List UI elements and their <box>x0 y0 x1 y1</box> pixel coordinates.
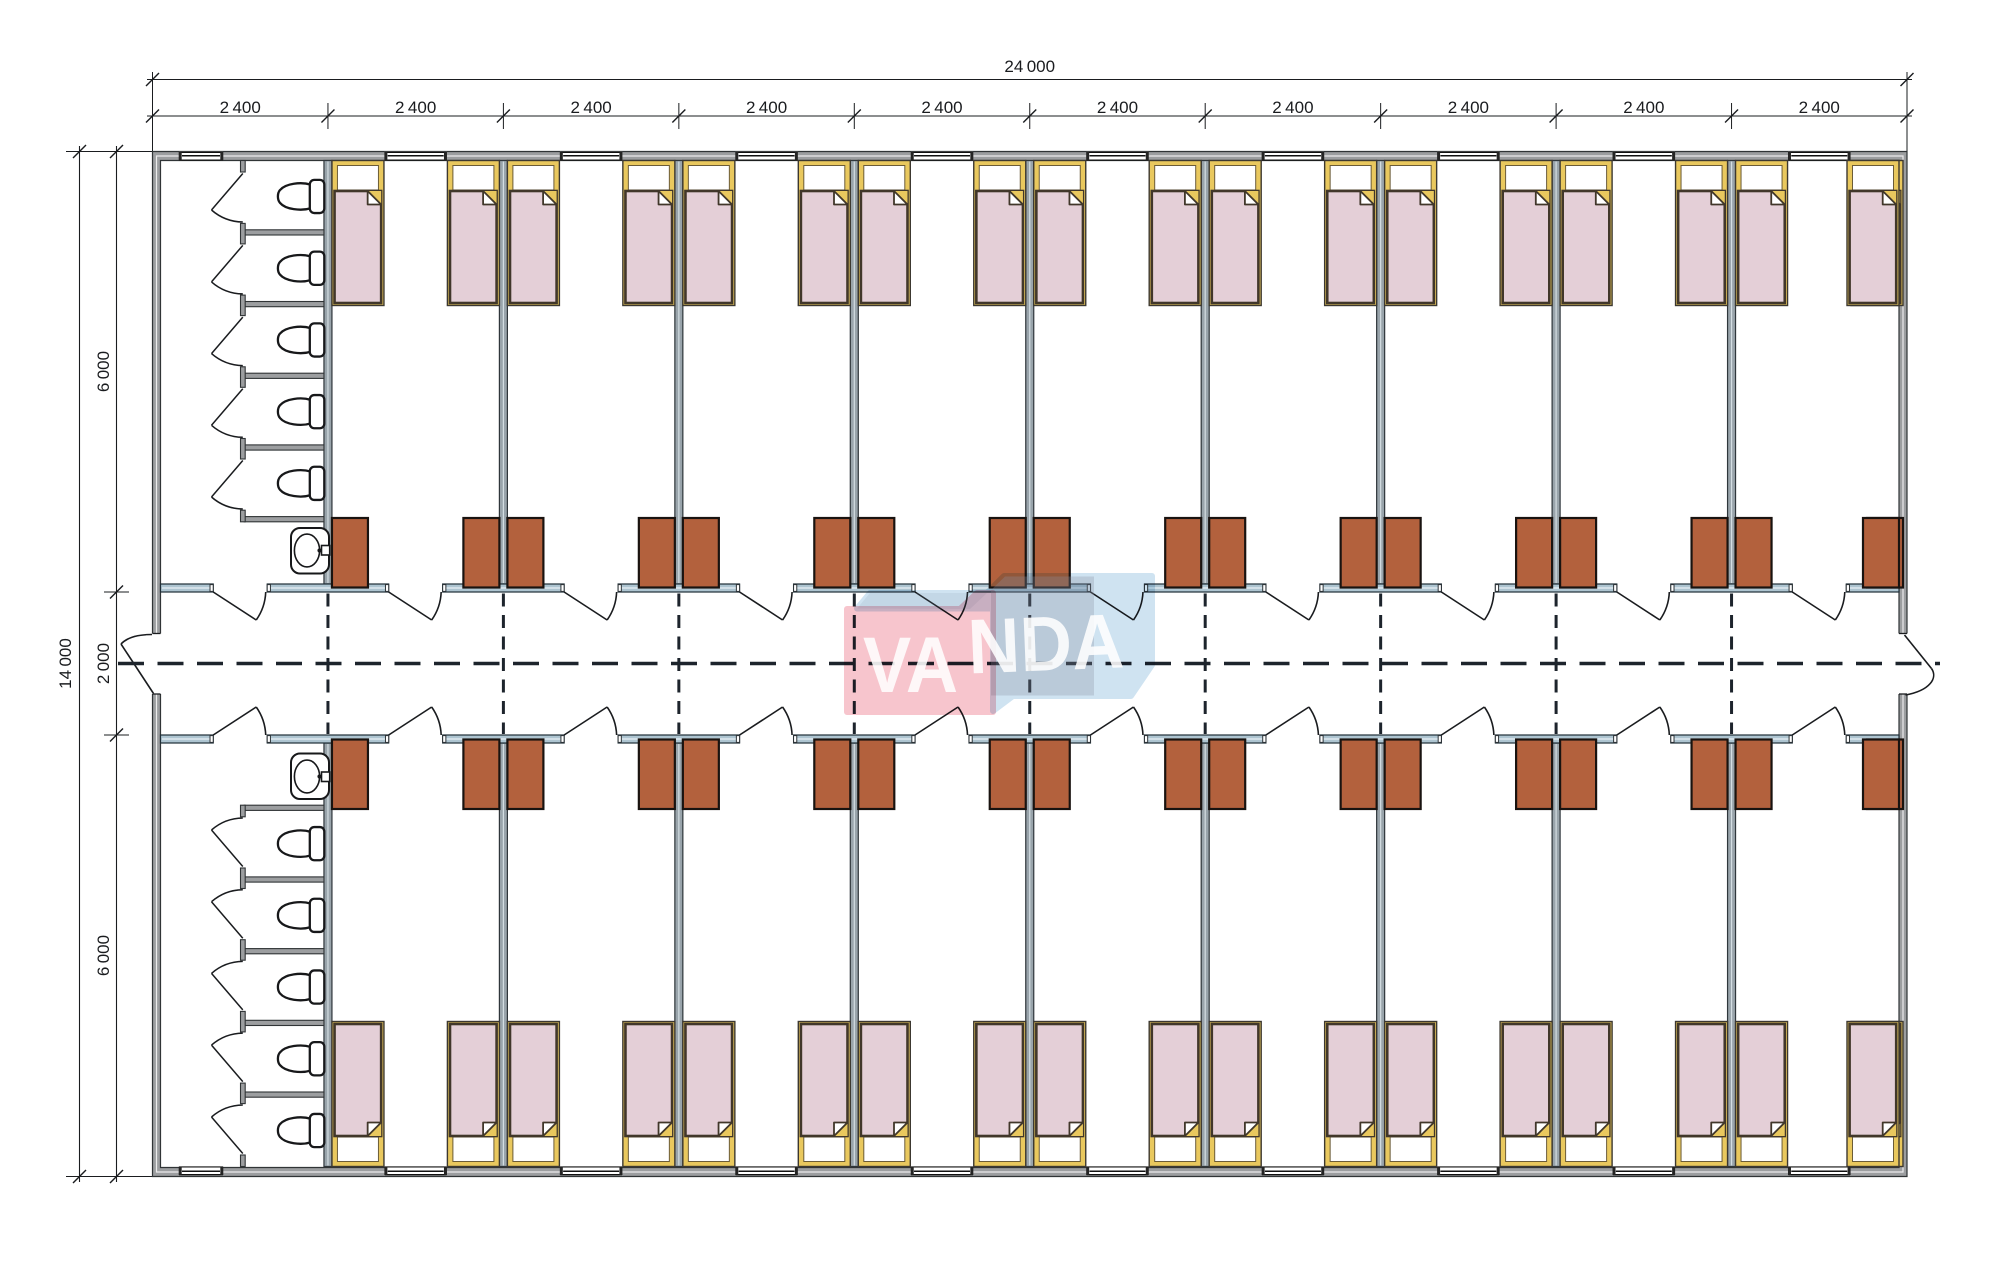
svg-text:2 400: 2 400 <box>746 98 787 117</box>
svg-text:2 400: 2 400 <box>571 98 612 117</box>
svg-text:6 000: 6 000 <box>94 351 113 392</box>
svg-text:14 000: 14 000 <box>56 638 75 689</box>
svg-text:2 400: 2 400 <box>1272 98 1313 117</box>
svg-text:NDA: NDA <box>966 598 1125 690</box>
svg-text:2 400: 2 400 <box>1623 98 1664 117</box>
svg-text:2 400: 2 400 <box>1097 98 1138 117</box>
svg-text:VA: VA <box>863 620 958 709</box>
svg-text:2 400: 2 400 <box>1448 98 1489 117</box>
svg-text:2 400: 2 400 <box>1799 98 1840 117</box>
svg-text:24 000: 24 000 <box>1004 57 1055 76</box>
svg-text:2 400: 2 400 <box>395 98 436 117</box>
svg-text:2 400: 2 400 <box>220 98 261 117</box>
svg-text:6 000: 6 000 <box>94 935 113 976</box>
svg-text:2 000: 2 000 <box>94 643 113 684</box>
svg-text:2 400: 2 400 <box>921 98 962 117</box>
